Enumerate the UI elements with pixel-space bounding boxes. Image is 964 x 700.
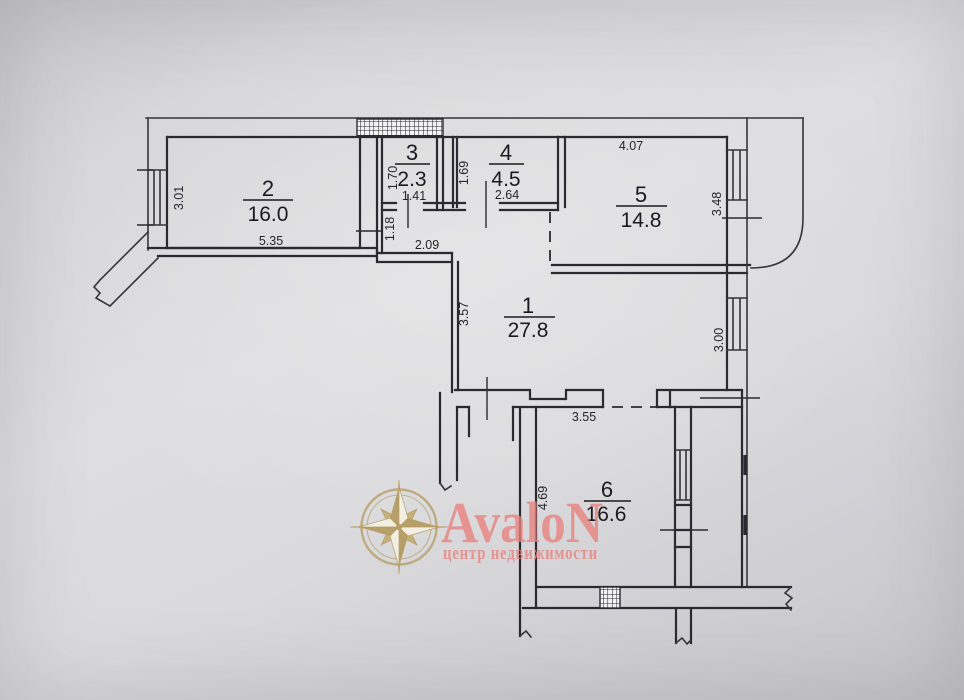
dim-3-55: 3.55	[572, 410, 596, 424]
dim-1-69: 1.69	[457, 161, 471, 185]
wall-break-icon	[785, 587, 792, 610]
dim-3-00: 3.00	[712, 328, 726, 352]
balcony-outline	[751, 118, 803, 268]
brand-tagline: центр недвижимости	[443, 543, 598, 564]
dim-1-18: 1.18	[383, 217, 397, 241]
room-3-number: 3	[406, 140, 418, 165]
room-4-number: 4	[500, 140, 512, 165]
dashed-openings	[550, 212, 657, 407]
brand-logo: AvaloN центр недвижимости	[350, 480, 603, 574]
room-1-area: 27.8	[508, 319, 549, 342]
dim-5-35: 5.35	[259, 234, 283, 248]
floor-plan-svg: 1 27.8 2 16.0 3 2.3 4 4.5 5 14.8 6 16.6 …	[0, 0, 964, 700]
floor-plan-photo: 1 27.8 2 16.0 3 2.3 4 4.5 5 14.8 6 16.6 …	[0, 0, 964, 700]
dim-1-41: 1.41	[402, 189, 426, 203]
compass-icon	[350, 480, 448, 574]
window-room2	[148, 170, 167, 225]
dimension-ticks	[137, 170, 762, 530]
window-room6	[675, 450, 691, 500]
dim-2-09: 2.09	[415, 238, 439, 252]
dim-3-48: 3.48	[710, 192, 724, 216]
dim-4-07: 4.07	[619, 139, 643, 153]
wall-break-icon	[676, 638, 691, 644]
window-room1	[727, 298, 747, 350]
room-5-number: 5	[635, 182, 647, 207]
room-3-area: 2.3	[397, 168, 426, 191]
dim-1-70: 1.70	[386, 166, 400, 190]
vent-shaft-top-hatch-icon	[357, 119, 443, 136]
walls	[94, 118, 803, 644]
room-labels: 1 27.8 2 16.0 3 2.3 4 4.5 5 14.8 6 16.6	[243, 140, 667, 526]
room-2-area: 16.0	[248, 203, 289, 226]
room-1-number: 1	[522, 293, 534, 318]
vent-shaft-bottom-hatch-icon	[600, 587, 620, 608]
dim-2-64: 2.64	[495, 188, 519, 202]
window-room5	[727, 150, 747, 200]
dim-3-57: 3.57	[457, 302, 471, 326]
dim-3-01: 3.01	[172, 186, 186, 210]
room-2-number: 2	[262, 176, 274, 201]
room-5-area: 14.8	[621, 209, 662, 232]
